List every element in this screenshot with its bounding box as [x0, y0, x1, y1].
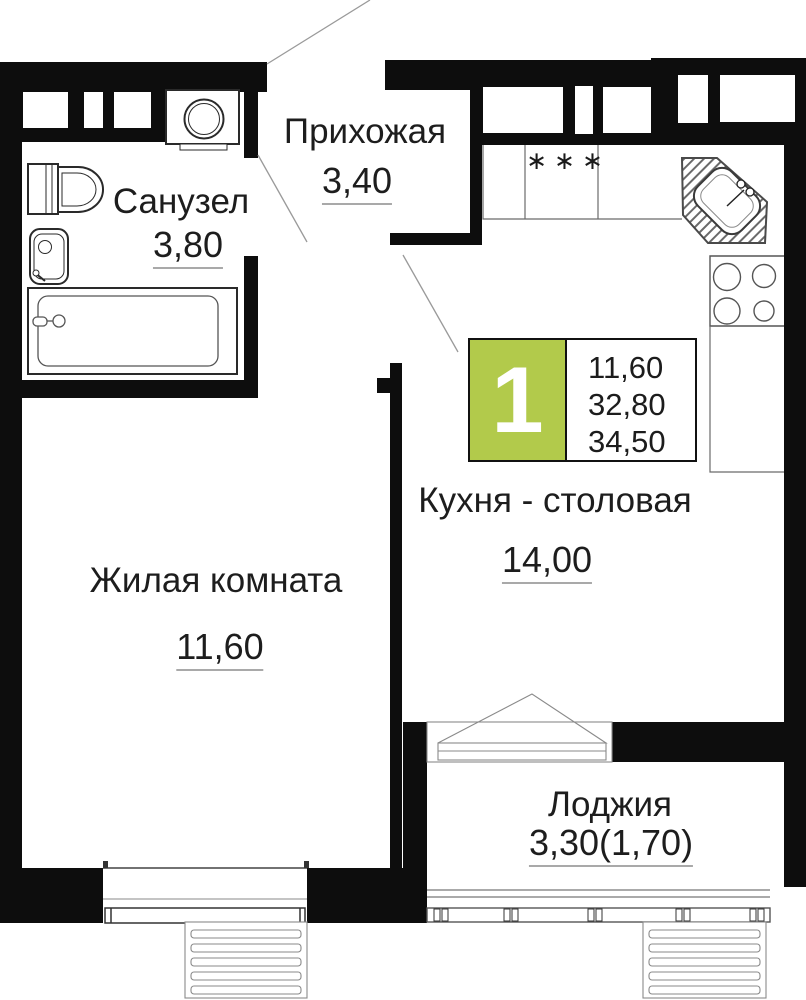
- area-total-value: 34,50: [588, 423, 695, 460]
- area-living-value: 11,60: [588, 349, 695, 386]
- room-label-sanuzel: Санузел: [113, 184, 249, 219]
- loggia-window-mullions: [434, 909, 764, 921]
- apartment-info-badge: 1 11,60 32,80 34,50: [468, 338, 697, 462]
- bathtub-icon: [28, 288, 237, 374]
- room-label-kuhnya: Кухня - столовая: [418, 483, 692, 518]
- bathroom-sink-icon: [30, 229, 68, 284]
- living-room-window: [103, 861, 309, 923]
- radiator-panel-left: [185, 922, 307, 998]
- washing-machine-icon: [166, 90, 239, 150]
- room-area-lodzhiya: 3,30(1,70): [529, 825, 693, 867]
- stove-burners-symbol: ∗∗∗: [526, 148, 610, 173]
- apartment-number: 1: [470, 340, 565, 460]
- balcony-door: [427, 694, 612, 762]
- room-area-zhilaya: 11,60: [176, 629, 263, 671]
- room-area-kuhnya: 14,00: [502, 542, 592, 584]
- room-label-prihozhaya: Прихожая: [284, 114, 446, 149]
- floorplan: Санузел 3,80 Прихожая 3,40 Жилая комната…: [0, 0, 806, 1000]
- room-area-prihozhaya: 3,40: [322, 163, 392, 205]
- radiator-panel-right: [643, 922, 766, 998]
- area-main-value: 32,80: [588, 386, 695, 423]
- kitchen-corner-sink-icon: [682, 158, 767, 243]
- apartment-areas: 11,60 32,80 34,50: [565, 340, 695, 460]
- kitchen-counter-right: [710, 326, 784, 472]
- stove-icon: [710, 256, 784, 326]
- room-area-sanuzel: 3,80: [153, 227, 223, 269]
- toilet-icon: [28, 164, 103, 214]
- room-label-zhilaya: Жилая комната: [90, 563, 343, 598]
- room-label-lodzhiya: Лоджия: [548, 787, 672, 822]
